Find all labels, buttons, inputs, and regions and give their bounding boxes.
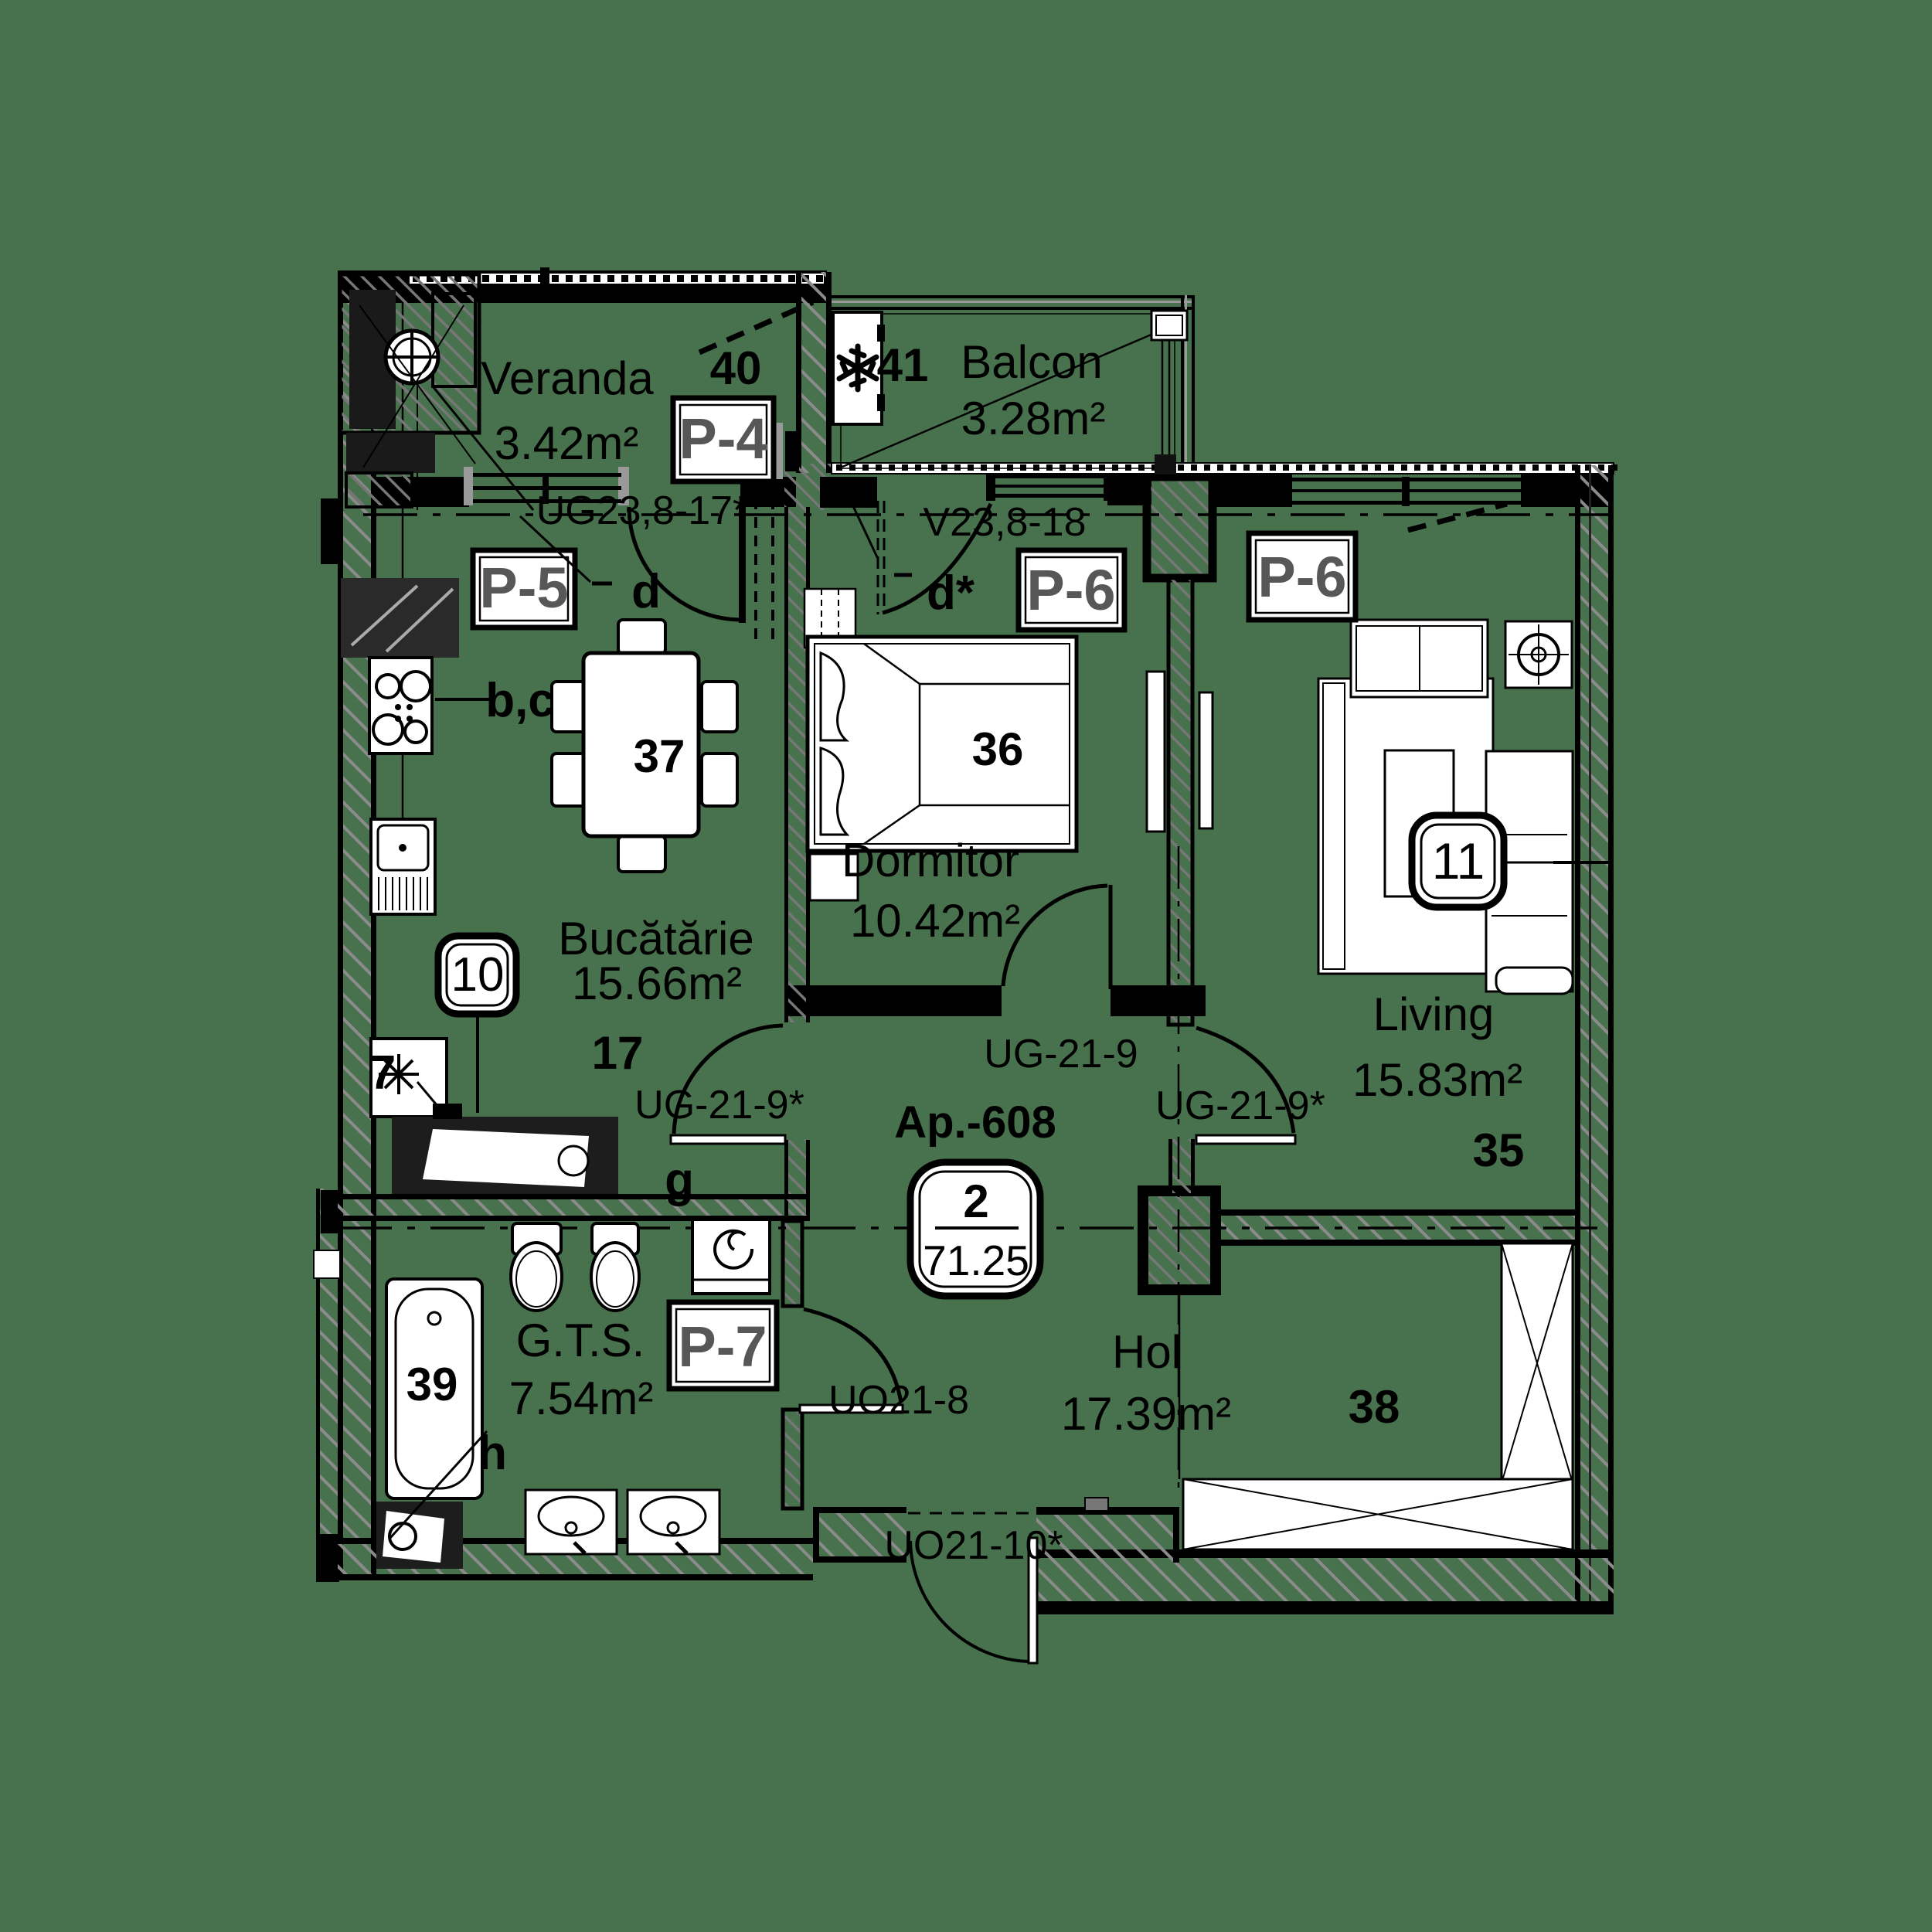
svg-text:UG23,8-17*: UG23,8-17* [536,488,749,533]
svg-text:40: 40 [710,342,762,394]
svg-text:g: g [665,1154,694,1207]
svg-text:38: 38 [1349,1381,1400,1433]
svg-text:15.83m²: 15.83m² [1352,1054,1522,1106]
svg-text:d*: d* [927,566,975,620]
svg-text:36: 36 [972,723,1024,775]
svg-text:37: 37 [634,730,685,782]
svg-text:h: h [478,1427,507,1480]
svg-text:35: 35 [1473,1124,1525,1176]
svg-text:P-5: P-5 [479,556,568,620]
svg-text:P-4: P-4 [679,406,767,471]
svg-text:UO21-8: UO21-8 [828,1378,969,1423]
svg-text:17: 17 [592,1027,644,1079]
svg-text:Living: Living [1373,988,1495,1040]
svg-text:P-6: P-6 [1257,545,1346,609]
svg-text:UG-21-9: UG-21-9 [984,1032,1138,1077]
svg-text:G.T.S.: G.T.S. [516,1315,645,1366]
svg-text:UG-21-9*: UG-21-9* [1155,1083,1325,1128]
svg-text:V23,8-18: V23,8-18 [923,500,1086,545]
svg-text:Bucătărie: Bucătărie [558,913,753,964]
svg-text:10: 10 [451,948,505,1002]
svg-text:11: 11 [1432,832,1485,889]
svg-text:Balcon: Balcon [961,336,1102,388]
svg-text:Ap.-608: Ap.-608 [894,1097,1056,1148]
svg-text:Veranda: Veranda [481,352,654,404]
svg-text:10.42m²: 10.42m² [850,895,1020,947]
svg-text:P-6: P-6 [1026,558,1115,622]
svg-text:39: 39 [406,1359,458,1410]
svg-text:7: 7 [369,1046,396,1100]
svg-text:Dormitor: Dormitor [842,835,1019,886]
svg-text:15.66m²: 15.66m² [572,957,742,1009]
svg-text:17.39m²: 17.39m² [1061,1388,1231,1440]
svg-text:3.28m²: 3.28m² [961,393,1106,444]
svg-text:2: 2 [963,1175,988,1227]
svg-text:71.25: 71.25 [923,1236,1029,1284]
svg-text:41: 41 [877,339,929,391]
svg-text:7.54m²: 7.54m² [509,1372,654,1424]
svg-text:P-7: P-7 [678,1315,767,1379]
svg-text:UO21-10*: UO21-10* [884,1523,1063,1568]
svg-text:d: d [631,565,661,618]
svg-text:b,c: b,c [485,674,555,727]
svg-text:Hol: Hol [1112,1326,1182,1378]
svg-text:UG-21-9*: UG-21-9* [634,1083,804,1128]
svg-text:3.42m²: 3.42m² [495,417,639,469]
